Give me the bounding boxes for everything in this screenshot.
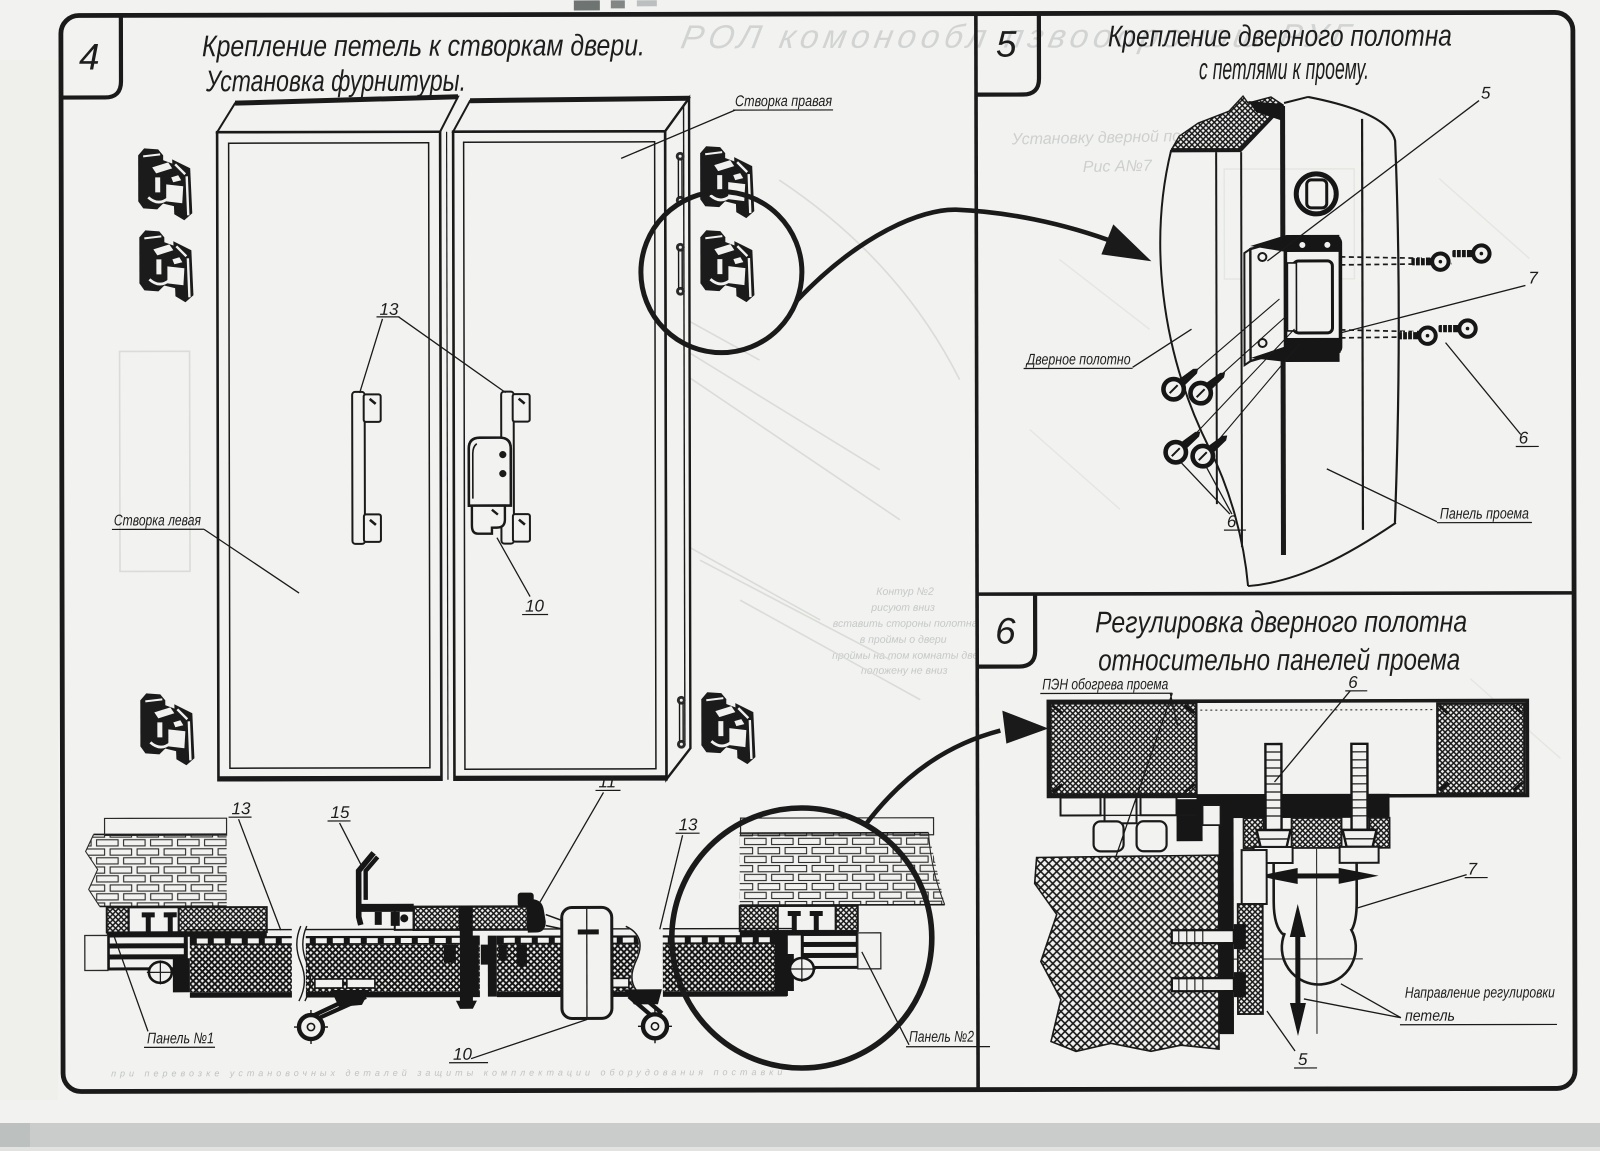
svg-text:10: 10 bbox=[525, 597, 544, 616]
svg-text:Панель №2: Панель №2 bbox=[909, 1029, 974, 1046]
svg-text:6: 6 bbox=[1227, 512, 1237, 531]
svg-text:Створка правая: Створка правая bbox=[735, 93, 832, 110]
svg-text:Регулировка дверного полотна: Регулировка дверного полотна bbox=[1095, 606, 1467, 640]
svg-text:5: 5 bbox=[1298, 1050, 1308, 1069]
svg-text:15: 15 bbox=[331, 803, 350, 822]
svg-text:13: 13 bbox=[679, 815, 698, 834]
svg-text:4: 4 bbox=[79, 36, 100, 77]
svg-text:10: 10 bbox=[453, 1045, 472, 1064]
svg-text:Крепление дверного полотна: Крепление дверного полотна bbox=[1108, 20, 1452, 54]
svg-text:петель: петель bbox=[1405, 1008, 1455, 1025]
svg-text:с петлями к проему.: с петлями к проему. bbox=[1199, 53, 1369, 86]
svg-text:Направление регулировки: Направление регулировки bbox=[1405, 984, 1555, 1001]
svg-text:5: 5 bbox=[996, 24, 1017, 65]
svg-text:Дверное полотно: Дверное полотно bbox=[1025, 351, 1131, 368]
svg-text:11: 11 bbox=[598, 772, 616, 791]
svg-text:Створка левая: Створка левая bbox=[114, 512, 201, 529]
svg-text:Панель №1: Панель №1 bbox=[147, 1030, 214, 1047]
svg-text:6: 6 bbox=[1348, 673, 1358, 692]
svg-text:6: 6 bbox=[1519, 428, 1529, 447]
svg-text:13: 13 bbox=[231, 799, 250, 818]
svg-text:5: 5 bbox=[1481, 84, 1491, 103]
svg-text:относительно панелей проема: относительно панелей проема bbox=[1098, 644, 1460, 678]
svg-text:6: 6 bbox=[995, 611, 1016, 652]
svg-text:7: 7 bbox=[1528, 268, 1538, 287]
svg-text:Панель проема: Панель проема bbox=[1440, 505, 1529, 522]
svg-text:ПЭН обогрева проема: ПЭН обогрева проема bbox=[1042, 676, 1168, 693]
svg-text:13: 13 bbox=[379, 300, 398, 319]
svg-text:Крепление петель к створкам дв: Крепление петель к створкам двери. bbox=[202, 29, 645, 63]
svg-text:7: 7 bbox=[1468, 860, 1478, 879]
svg-text:Установка фурнитуры.: Установка фурнитуры. bbox=[205, 65, 466, 99]
